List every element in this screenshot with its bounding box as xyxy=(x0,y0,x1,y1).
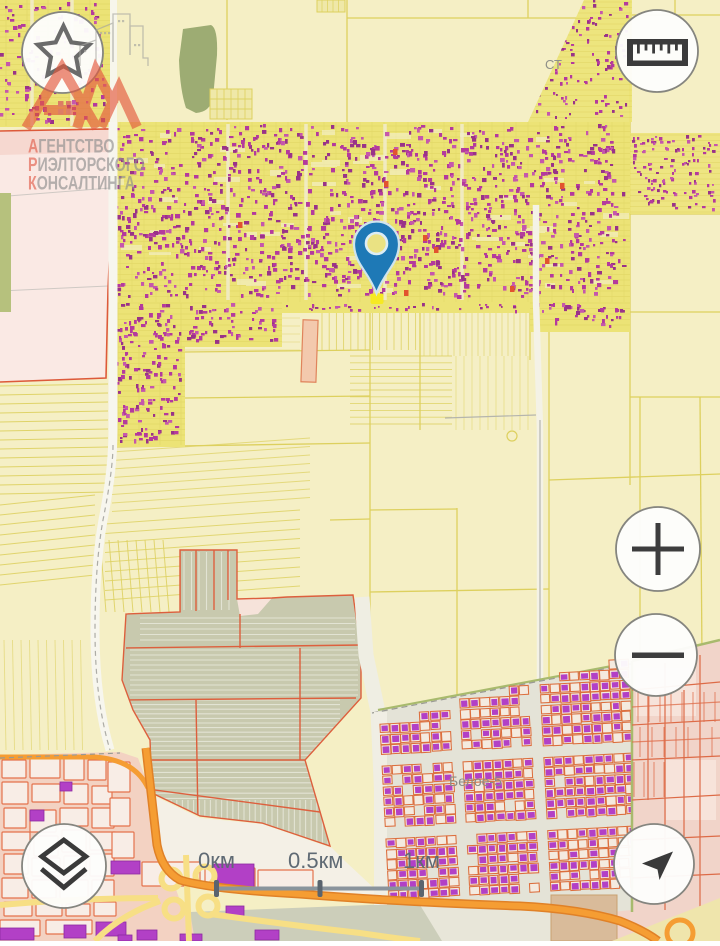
svg-text:0.5км: 0.5км xyxy=(288,848,343,873)
svg-text:1км: 1км xyxy=(403,848,440,873)
svg-text:Белое-5: Белое-5 xyxy=(449,773,502,789)
svg-text:0км: 0км xyxy=(198,848,235,873)
svg-text:СТ: СТ xyxy=(545,57,562,72)
svg-text:КОНСАЛТИНГА: КОНСАЛТИНГА xyxy=(28,172,135,194)
